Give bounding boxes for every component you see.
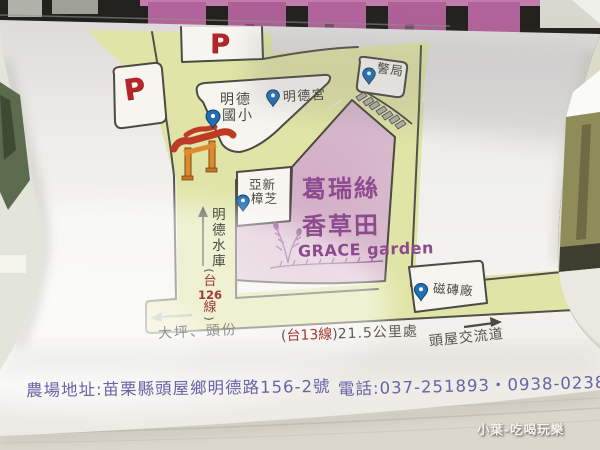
route-126-num: 126 [198,289,222,301]
route-126-tai: 台 [203,275,216,289]
route-126-xian: 線 [203,301,216,315]
yaxin-label-line1: 亞新 [249,178,276,192]
distance-label: 21.5公里處 [337,324,418,343]
yaxin-label-line2: 樟芝 [251,192,278,206]
school-label-line2: 國小 [222,109,254,124]
garden-name-en: GRACE garden [298,239,434,260]
school-label-line1: 明德 [220,93,252,108]
photo-watermark: 小葉-吃喝玩樂 [477,423,564,437]
parking-top-label: P [210,30,230,60]
parking-left-label: P [122,73,147,108]
garden-name-zh-line2: 香草田 [302,212,380,240]
reservoir-label: 明德水庫 [209,207,224,269]
photo-of-hand-drawn-map: P P 明德 國小 明德宮 警局 亞新 樟芝 磁磚廠 明德水庫 ( 台 126 … [0,0,600,450]
temple-label: 明德宮 [283,89,327,106]
route-13-name: 台13線 [286,327,332,345]
window-light [8,0,42,17]
route-126-label: ( 台 126 線 ) [202,266,218,323]
chair-back [468,2,520,34]
chair-back [388,2,446,34]
garden-name-zh-line1: 葛瑞絲 [302,175,380,203]
route-126-open: ( [205,268,214,272]
route-126-close: ) [205,317,214,321]
tile-factory-label: 磁磚廠 [433,282,474,299]
